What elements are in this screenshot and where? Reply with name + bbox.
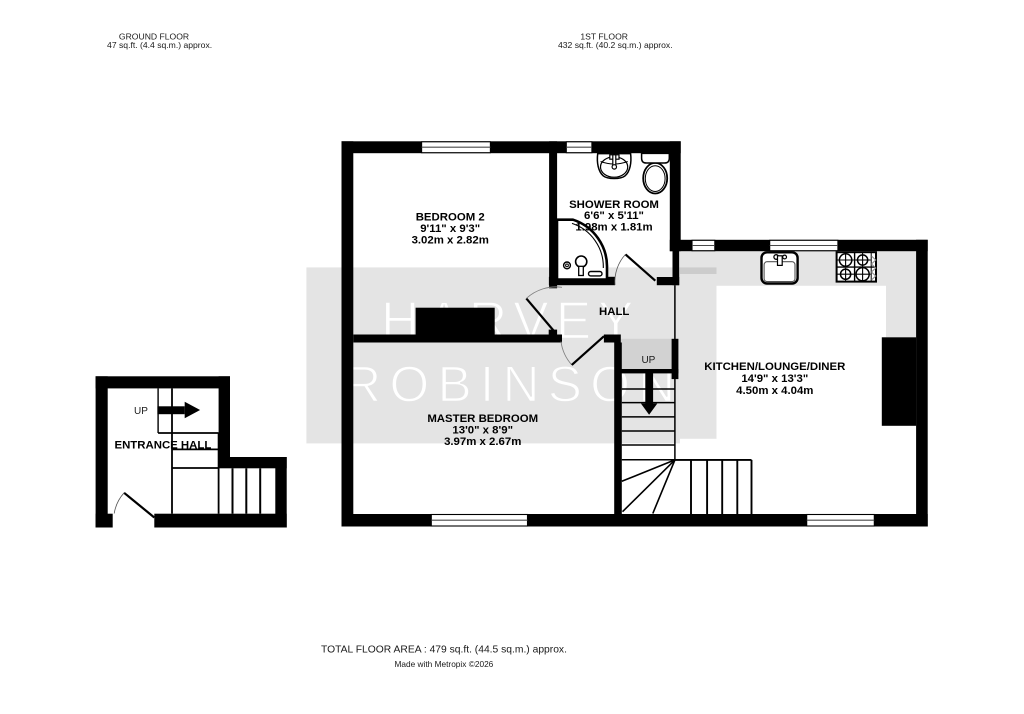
svg-text:4.50m x 4.04m: 4.50m x 4.04m bbox=[736, 385, 813, 397]
svg-text:UP: UP bbox=[134, 406, 148, 417]
svg-text:ENTRANCE HALL: ENTRANCE HALL bbox=[114, 439, 211, 451]
svg-text:47 sq.ft. (4.4 sq.m.) approx.: 47 sq.ft. (4.4 sq.m.) approx. bbox=[107, 40, 212, 50]
svg-text:MASTER BEDROOM: MASTER BEDROOM bbox=[427, 413, 538, 425]
svg-text:TOTAL FLOOR AREA : 479 sq.ft.: TOTAL FLOOR AREA : 479 sq.ft. (44.5 sq.m… bbox=[321, 644, 567, 655]
svg-text:9'11" x 9'3": 9'11" x 9'3" bbox=[420, 223, 480, 235]
svg-text:14'9" x 13'3": 14'9" x 13'3" bbox=[741, 373, 808, 385]
svg-text:1.98m x 1.81m: 1.98m x 1.81m bbox=[575, 221, 652, 233]
svg-text:432 sq.ft. (40.2 sq.m.) approx: 432 sq.ft. (40.2 sq.m.) approx. bbox=[558, 40, 673, 50]
svg-text:HALL: HALL bbox=[599, 306, 629, 318]
svg-text:BEDROOM 2: BEDROOM 2 bbox=[416, 212, 485, 224]
svg-text:KITCHEN/LOUNGE/DINER: KITCHEN/LOUNGE/DINER bbox=[704, 361, 845, 373]
svg-text:13'0" x 8'9": 13'0" x 8'9" bbox=[452, 424, 513, 436]
svg-text:UP: UP bbox=[641, 355, 655, 366]
svg-text:6'6" x 5'11": 6'6" x 5'11" bbox=[584, 210, 644, 222]
svg-text:Made with Metropix ©2026: Made with Metropix ©2026 bbox=[394, 659, 493, 669]
svg-text:3.97m x 2.67m: 3.97m x 2.67m bbox=[444, 436, 521, 448]
svg-text:3.02m x 2.82m: 3.02m x 2.82m bbox=[412, 234, 489, 246]
